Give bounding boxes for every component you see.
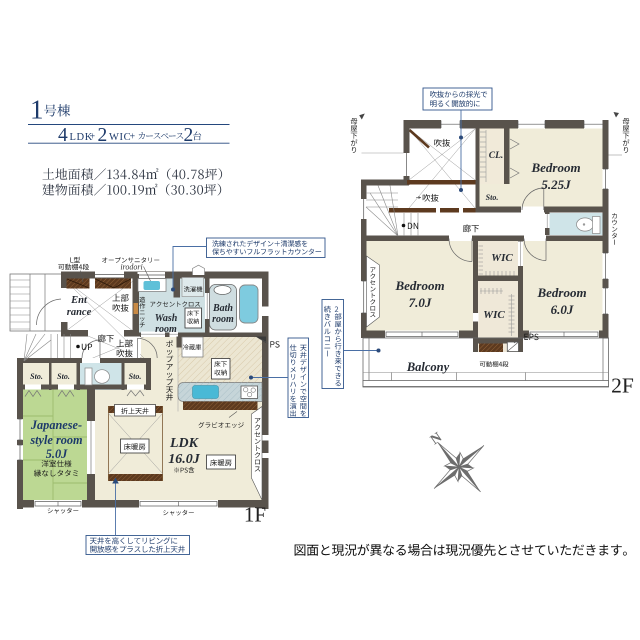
svg-text:Wash: Wash	[155, 313, 178, 324]
svg-text:16.0J: 16.0J	[168, 452, 201, 467]
svg-text:WIC: WIC	[483, 309, 505, 321]
svg-text:Bedroom: Bedroom	[394, 278, 444, 293]
svg-text:5.25J: 5.25J	[541, 177, 571, 192]
svg-text:1F: 1F	[244, 503, 266, 527]
svg-text:2F: 2F	[611, 374, 634, 398]
svg-text:Bath: Bath	[212, 303, 233, 314]
svg-text:Sto.: Sto.	[30, 372, 43, 381]
svg-text:Bedroom: Bedroom	[536, 285, 586, 300]
svg-text:1: 1	[30, 95, 44, 125]
svg-text:Sto.: Sto.	[57, 372, 70, 381]
svg-text:+: +	[90, 132, 96, 143]
svg-text:Japanese-: Japanese-	[30, 418, 82, 432]
svg-text:5.0J: 5.0J	[46, 447, 68, 461]
svg-text:LDK: LDK	[169, 436, 200, 451]
svg-text:style room: style room	[29, 433, 82, 447]
svg-text:Sto.: Sto.	[129, 372, 142, 381]
svg-text:room: room	[212, 314, 234, 325]
svg-text:WIC: WIC	[109, 132, 131, 143]
svg-text:WIC: WIC	[491, 252, 513, 264]
svg-text:rance: rance	[67, 307, 92, 318]
svg-text:irodori: irodori	[120, 263, 142, 272]
svg-text:Sto.: Sto.	[486, 193, 499, 202]
svg-text:room: room	[155, 324, 177, 335]
svg-text:CL.: CL.	[489, 151, 504, 161]
svg-text:+: +	[130, 132, 136, 143]
svg-text:N: N	[428, 430, 445, 448]
svg-text:Ent: Ent	[70, 295, 88, 306]
svg-text:6.0J: 6.0J	[551, 302, 574, 317]
svg-text:Balcony: Balcony	[406, 360, 450, 374]
svg-text:7.0J: 7.0J	[409, 295, 432, 310]
svg-text:Bedroom: Bedroom	[530, 160, 580, 175]
